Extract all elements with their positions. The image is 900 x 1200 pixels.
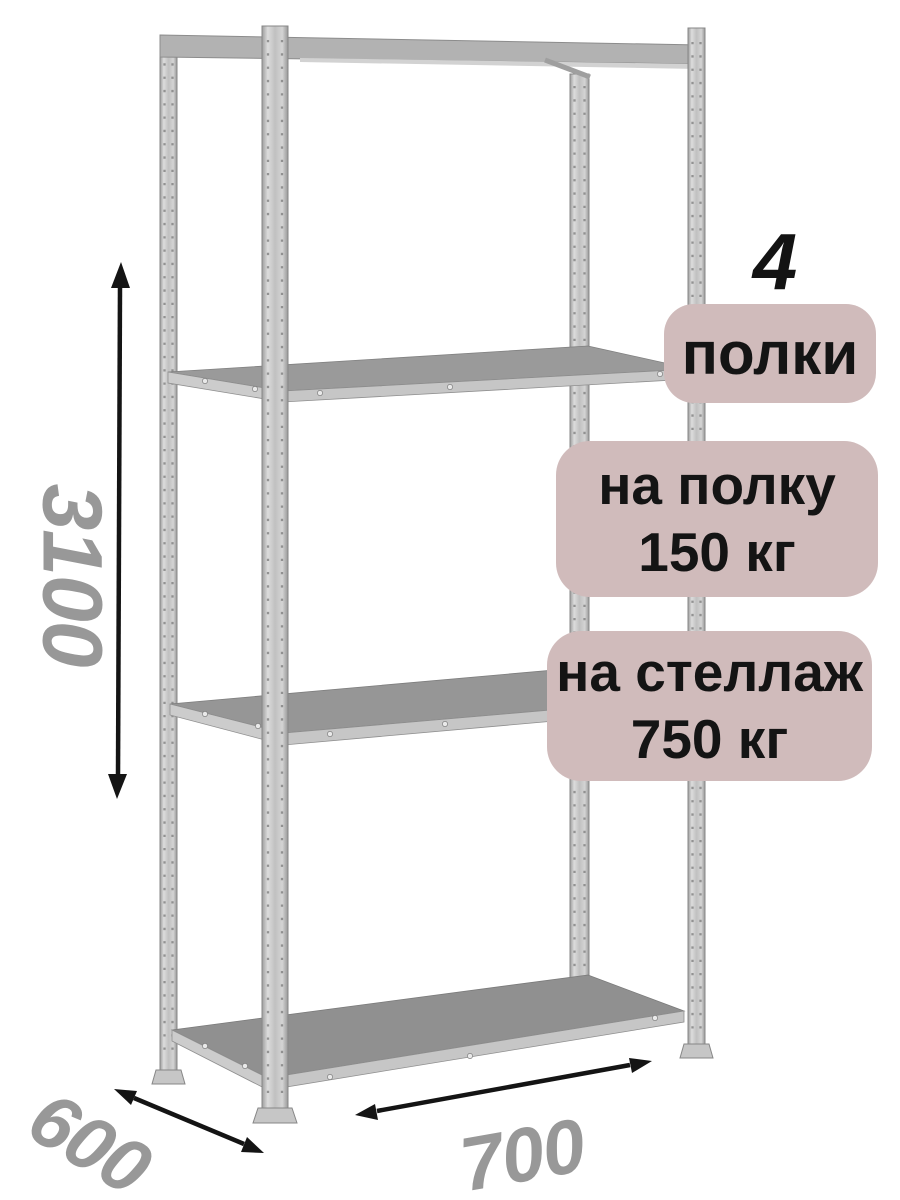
rack-load-line1: на стеллаж [556, 639, 863, 706]
rack-illustration [0, 0, 900, 1200]
shelf-top [160, 35, 700, 77]
height-dimension-label: 3100 [31, 483, 115, 668]
shelf-2 [168, 346, 692, 402]
shelf-load-line2: 150 кг [638, 519, 795, 586]
post-front-left [253, 26, 297, 1123]
product-image-shelving-rack: 4 полки на полку 150 кг на стеллаж 750 к… [0, 0, 900, 1200]
rack-load-line2: 750 кг [631, 706, 788, 773]
shelf-load-line1: на полку [598, 452, 836, 519]
shelf-load-badge: на полку 150 кг [556, 441, 878, 597]
rack-load-badge: на стеллаж 750 кг [547, 631, 872, 781]
shelf-count-badge: полки [664, 304, 876, 403]
post-back-left [152, 36, 185, 1084]
shelf-4 [172, 975, 684, 1090]
shelf-count-number: 4 [700, 222, 850, 302]
shelf-count-badge-label: полки [682, 319, 858, 388]
